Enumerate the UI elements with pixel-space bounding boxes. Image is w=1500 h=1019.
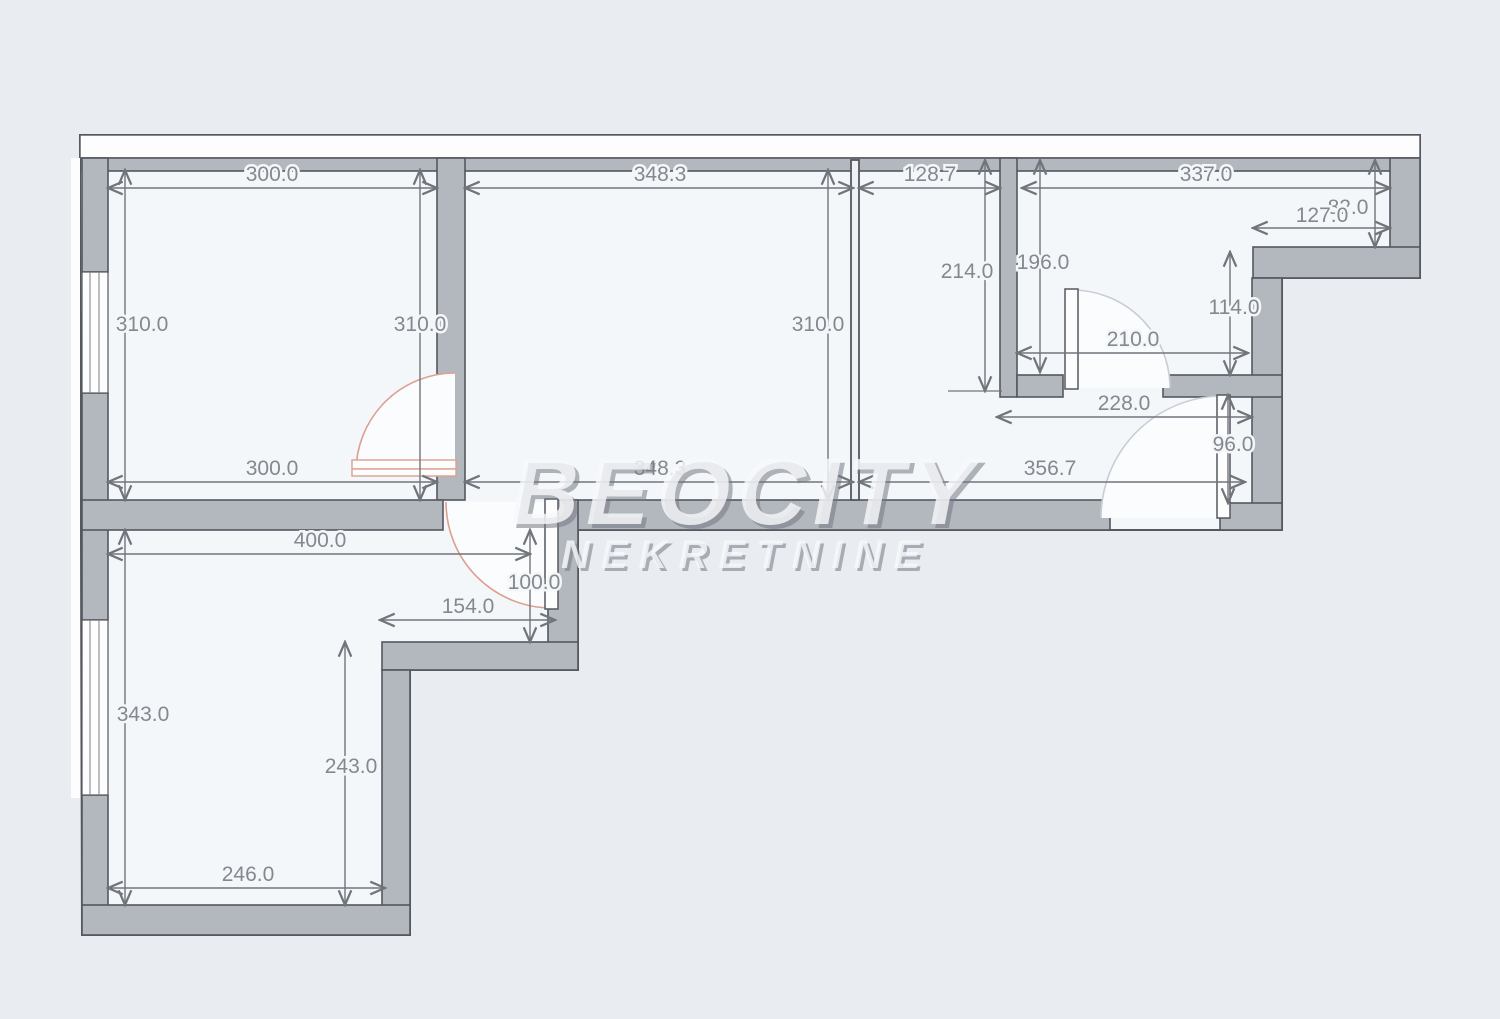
floor-plan-page: 300.0 348.3 128.7 337.0 82.0 127.0 310.0… [0, 0, 1500, 1019]
wall-segment [382, 670, 410, 935]
dimension-label: 127.0 [1296, 204, 1349, 227]
window [82, 620, 108, 795]
door-leaf [352, 460, 456, 469]
dimension-label: 128.7 [904, 163, 957, 186]
dimension-label: 356.7 [1024, 457, 1077, 480]
wall-segment [82, 905, 410, 935]
dimension-label: 210.0 [1107, 328, 1160, 351]
dimension-label: 154.0 [442, 595, 495, 618]
wall-segment [82, 158, 108, 272]
dimension-label: 310.0 [792, 313, 845, 336]
dimension-label: 100.0 [508, 571, 561, 594]
watermark-line1: BEOCITY [510, 439, 982, 545]
left-white-strip [71, 158, 80, 798]
door-leaf [352, 469, 456, 476]
dimension-label: 300.0 [246, 163, 299, 186]
dimension-label: 243.0 [325, 755, 378, 778]
dimension-label: 310.0 [394, 313, 447, 336]
dimension-label: 348.3 [634, 163, 687, 186]
dimension-label: 300.0 [246, 457, 299, 480]
dimension-label: 196.0 [1017, 251, 1070, 274]
wall-segment [1000, 158, 1017, 397]
door-leaf [1065, 289, 1078, 389]
watermark: BEOCITY BEOCITY NEKRETNINE NEKRETNINE [510, 439, 986, 580]
dimension-label: 214.0 [941, 260, 994, 283]
dimension-label: 310.0 [116, 313, 169, 336]
dimension-label: 400.0 [294, 529, 347, 552]
watermark-line2: NEKRETNINE [561, 533, 931, 577]
dimension-label: 246.0 [222, 863, 275, 886]
dimension-label: 228.0 [1098, 392, 1151, 415]
top-white-band [80, 135, 1420, 158]
dimension-label: 343.0 [117, 703, 170, 726]
wall-segment [1253, 247, 1420, 278]
dimension-label: 114.0 [1209, 296, 1260, 319]
wall-segment [1017, 375, 1063, 397]
window [82, 272, 108, 393]
floor-plan-canvas: 300.0 348.3 128.7 337.0 82.0 127.0 310.0… [0, 0, 1500, 1019]
wall-segment [382, 642, 578, 670]
dimension-label: 337.0 [1180, 163, 1233, 186]
dimension-label: 96.0 [1213, 433, 1254, 456]
wall-segment [82, 500, 443, 530]
wall-segment [1163, 375, 1282, 397]
